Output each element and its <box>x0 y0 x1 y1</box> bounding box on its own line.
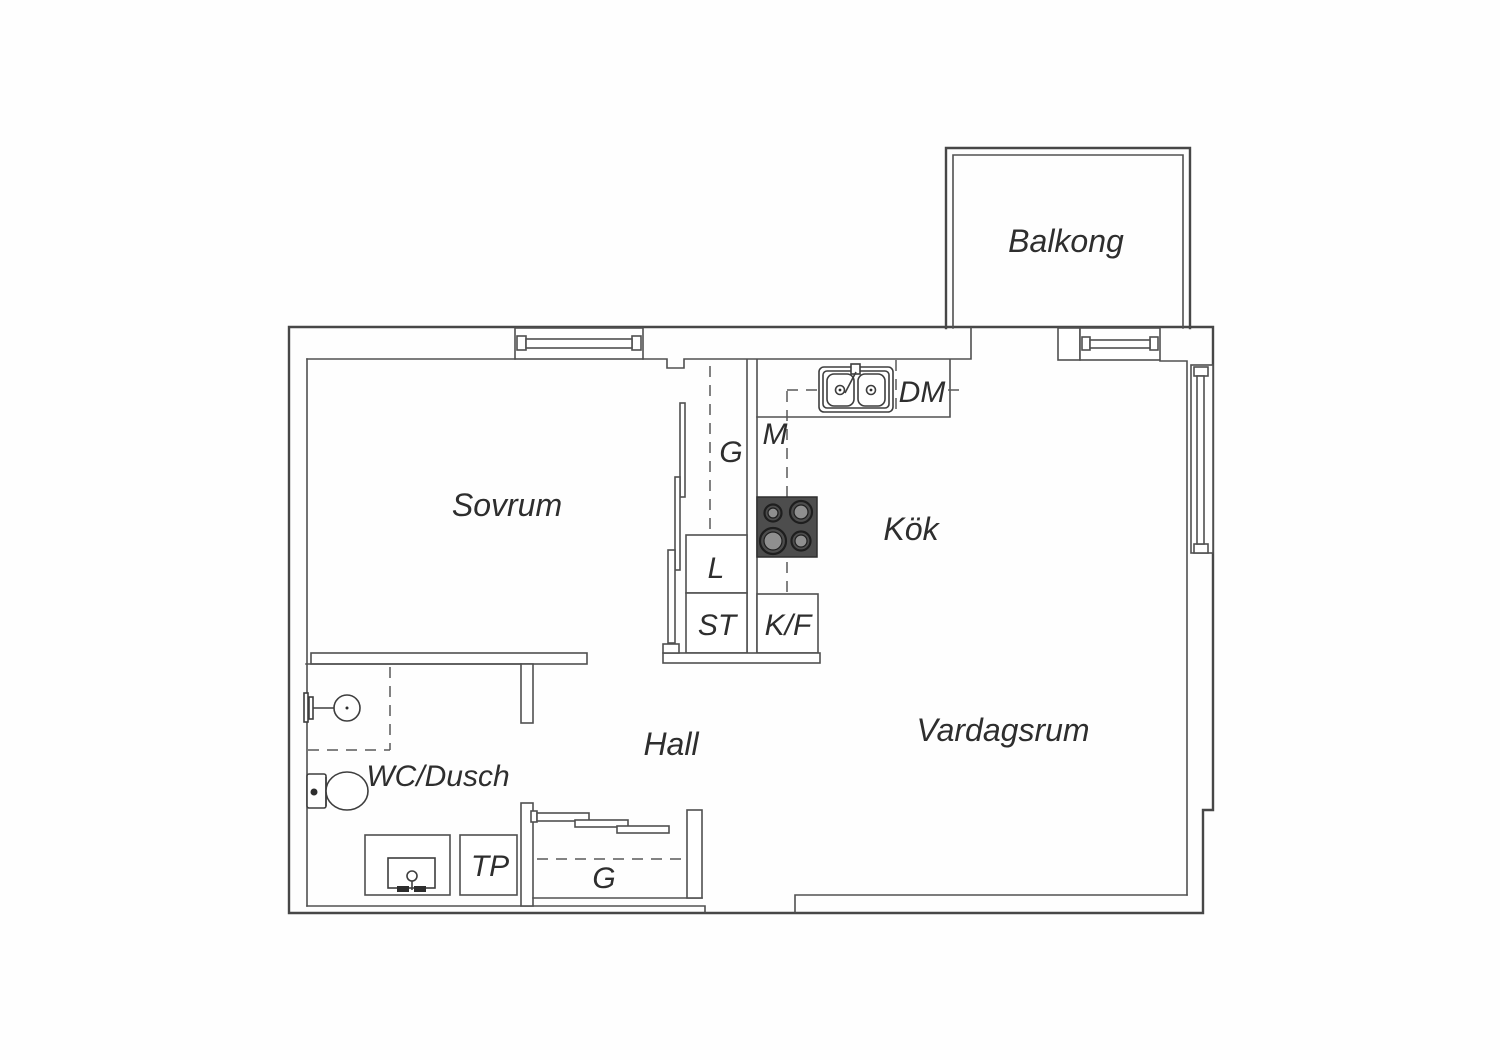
sink-drain-right-dot <box>870 389 873 392</box>
bedroom-wardrobe-sliding-door-3 <box>668 550 675 643</box>
living-room-window-glazing <box>1197 376 1204 544</box>
closet-bottom-wall-step <box>663 644 679 653</box>
label-linen-cabinet: L <box>708 552 725 585</box>
hall-wardrobe-sliding-door-3 <box>617 826 669 833</box>
label-bathroom: WC/Dusch <box>366 760 509 793</box>
label-wardrobe-hall: G <box>592 862 615 895</box>
shower-head <box>304 693 360 722</box>
hall-wardrobe-right-jamb <box>687 810 702 898</box>
shower-wall-plate-2 <box>309 697 313 719</box>
label-cleaning-cabinet: ST <box>698 609 739 642</box>
washbasin-handle-right <box>414 886 426 892</box>
label-microwave: M <box>763 418 788 451</box>
sink-drain-left-dot <box>839 389 842 392</box>
label-fridge-freezer: K/F <box>765 609 813 642</box>
interior-walls <box>306 360 950 906</box>
balcony-door-pier <box>1058 328 1080 360</box>
label-kitchen: Kök <box>883 511 940 547</box>
washbasin-faucet-knob <box>407 871 417 881</box>
toilet-bowl <box>326 772 368 810</box>
bedroom-window-cap-left <box>517 336 526 350</box>
living-room-window-cap-top <box>1194 367 1208 376</box>
bedroom-window-glazing <box>526 339 632 348</box>
kitchen-top-window-cap-right <box>1150 337 1158 350</box>
label-hall: Hall <box>643 726 699 762</box>
label-dishwasher: DM <box>899 376 946 409</box>
bottom-wall-inner-left <box>307 906 705 912</box>
kitchen-top-window-cap-left <box>1082 337 1090 350</box>
washbasin-handle-left <box>397 886 409 892</box>
windows <box>515 328 1213 553</box>
kitchen-sink <box>819 364 893 412</box>
shower-wall-plate-1 <box>304 693 308 722</box>
living-room-window-cap-bottom <box>1194 544 1208 553</box>
washbasin <box>388 858 435 892</box>
toilet-flush-button <box>311 789 318 796</box>
label-drying-cabinet: TP <box>471 850 509 883</box>
label-living-room: Vardagsrum <box>916 712 1089 748</box>
bedroom-bottom-wall <box>311 653 587 664</box>
label-wardrobe-bedroom: G <box>719 436 742 469</box>
closet-bottom-wall-bar <box>663 653 820 663</box>
shower-head-center-dot <box>346 707 349 710</box>
burner-bottom-left <box>760 528 786 554</box>
room-labels: Balkong Sovrum Kök Vardagsrum Hall WC/Du… <box>366 223 1124 793</box>
floor-plan-page: Balkong Sovrum Kök Vardagsrum Hall WC/Du… <box>0 0 1500 1060</box>
kitchen-fixtures <box>757 364 893 557</box>
bedroom-window-cap-right <box>632 336 641 350</box>
outer-wall-outline <box>289 327 1213 913</box>
bottom-wall-inner-right <box>795 895 1187 912</box>
kitchen-top-window-glazing <box>1090 340 1150 348</box>
bathroom-door-jamb-upper <box>521 664 533 723</box>
exterior-walls <box>289 327 1213 913</box>
label-balcony: Balkong <box>1008 223 1124 259</box>
label-bedroom: Sovrum <box>452 487 562 523</box>
floor-plan-drawing: Balkong Sovrum Kök Vardagsrum Hall WC/Du… <box>0 0 1500 1060</box>
top-wall-inner-mid <box>643 328 971 368</box>
toilet <box>307 772 368 810</box>
hall-wardrobe-rail-bracket <box>531 811 537 822</box>
top-wall-inner-right-and-right-wall <box>1160 361 1187 895</box>
